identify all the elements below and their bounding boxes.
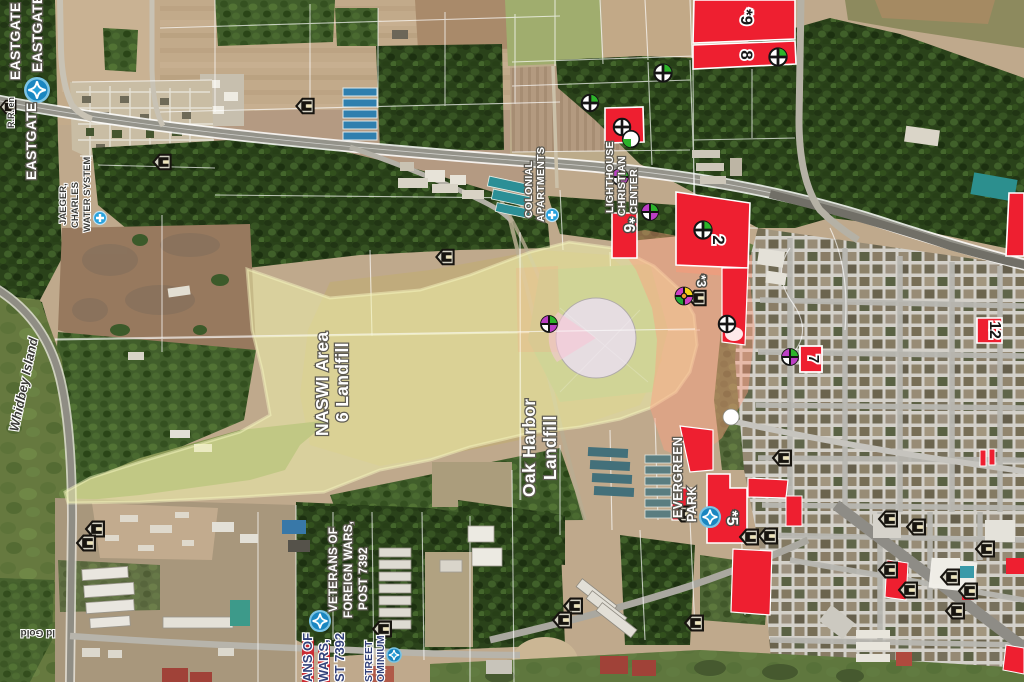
svg-text:POST 7392: POST 7392 (358, 547, 370, 610)
svg-text:Oak Harbor: Oak Harbor (519, 399, 539, 497)
svg-text:6 Landfill: 6 Landfill (332, 342, 352, 422)
svg-text:NASWI Area: NASWI Area (312, 332, 332, 436)
svg-text:CHARLES: CHARLES (70, 182, 81, 228)
svg-text:EVERGREEN: EVERGREEN (671, 437, 685, 518)
svg-text:*5: *5 (723, 510, 740, 525)
svg-text:PARK: PARK (685, 486, 699, 522)
svg-text:OMINIUM: OMINIUM (375, 635, 387, 682)
svg-text:*6: *6 (620, 217, 637, 232)
svg-text:WARS,: WARS, (316, 639, 331, 682)
svg-text:EASTGATE: EASTGATE (23, 102, 39, 180)
svg-text:Landfill: Landfill (540, 415, 560, 480)
svg-text:VETERANS OF: VETERANS OF (328, 527, 340, 612)
svg-text:WATER SYSTEM: WATER SYSTEM (82, 157, 93, 232)
svg-text:LIGHTHOUSE: LIGHTHOUSE (604, 141, 616, 213)
svg-text:EASTGATE: EASTGATE (7, 2, 23, 80)
svg-text:CHRISTIAN: CHRISTIAN (616, 156, 628, 216)
svg-text:7: 7 (805, 355, 822, 363)
svg-text:ld Gold: ld Gold (21, 627, 55, 638)
svg-text:8: 8 (737, 50, 756, 59)
svg-text:COLONIAL: COLONIAL (523, 160, 535, 218)
svg-text:*3: *3 (694, 275, 709, 287)
svg-text:EASTGATE: EASTGATE (29, 0, 45, 72)
svg-text:APARTMENTS: APARTMENTS (535, 147, 547, 222)
svg-text:ANS OF: ANS OF (300, 633, 315, 682)
svg-text:STREET: STREET (363, 640, 375, 682)
svg-text:*9: *9 (737, 9, 756, 25)
svg-text:R.R. en: R.R. en (6, 97, 16, 128)
svg-text:ST 7392: ST 7392 (332, 633, 347, 682)
svg-text:2: 2 (709, 235, 728, 244)
svg-text:CENTER: CENTER (628, 169, 640, 214)
svg-text:12: 12 (986, 321, 1003, 339)
svg-text:FOREIGN WARS,: FOREIGN WARS, (343, 521, 355, 618)
svg-text:JAEGER,: JAEGER, (58, 183, 69, 225)
